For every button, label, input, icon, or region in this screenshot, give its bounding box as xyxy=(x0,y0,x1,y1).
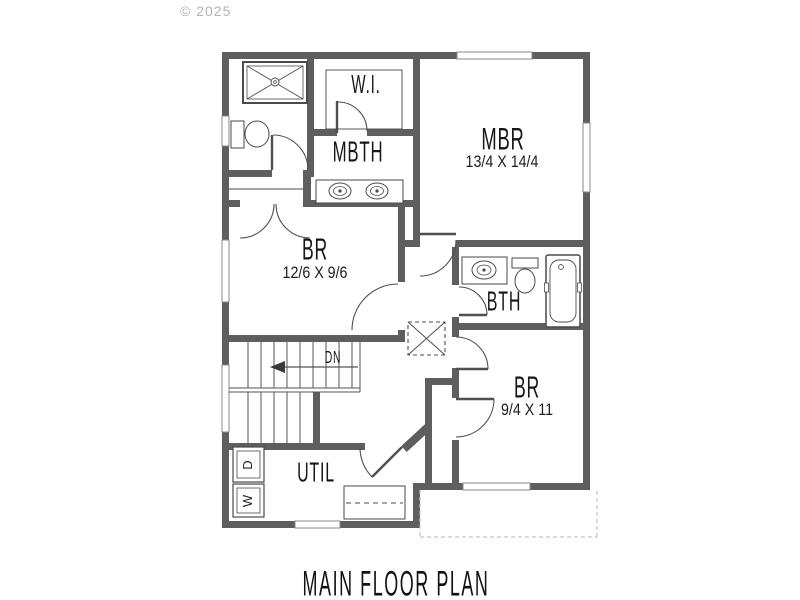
wall-mbr-west xyxy=(413,52,420,247)
wall-exterior-top xyxy=(222,52,590,59)
window-toilet-room xyxy=(222,116,229,146)
window-mbr-right xyxy=(583,123,590,192)
attic-access-icon xyxy=(408,322,445,355)
washer-icon: W xyxy=(233,484,264,517)
wall-exterior-step xyxy=(413,483,420,528)
stairs-down-arrow xyxy=(270,361,358,373)
floor-plan-sheet: © 2025 xyxy=(0,0,800,600)
wall-closet3-north xyxy=(425,378,452,385)
window-br3-bottom xyxy=(463,483,530,490)
wall-mbr-south xyxy=(456,240,583,247)
double-vanity-icon xyxy=(316,180,403,203)
door-util xyxy=(360,447,402,477)
bath-sink-icon xyxy=(462,257,507,284)
walls xyxy=(222,52,590,528)
room-label-master-bath: MBTH xyxy=(333,136,384,169)
door-br2-closet-double xyxy=(240,204,310,238)
room-dim-master-bedroom: 13/4 X 14/4 xyxy=(466,153,539,171)
wall-hall-north-stub xyxy=(398,240,420,247)
wall-wi-west xyxy=(307,52,314,177)
door-mbr xyxy=(420,234,456,276)
windows xyxy=(222,52,590,528)
door-br2 xyxy=(352,284,398,330)
door-toilet-room xyxy=(272,135,308,170)
room-label-bath: BTH xyxy=(487,287,521,319)
window-mbr-top xyxy=(457,52,532,59)
door-br3-closet xyxy=(456,399,494,437)
util-counter-icon xyxy=(344,486,405,519)
room-label-utility: UTIL xyxy=(297,458,335,490)
washer-label: W xyxy=(240,494,255,507)
window-br2 xyxy=(222,240,229,302)
door-walk-in-closet xyxy=(337,101,367,133)
wall-stair xyxy=(313,392,320,443)
wall-closet-east xyxy=(303,170,311,207)
door-br3-entry xyxy=(456,337,488,369)
wall-closet3-west xyxy=(425,385,432,490)
stairs-down-label: DN xyxy=(325,347,342,368)
wall-br3-west-low xyxy=(452,440,459,483)
wall-wi-south-right xyxy=(367,129,413,136)
porch-outline-dashed xyxy=(420,490,597,537)
room-label-bedroom-2: BR xyxy=(302,232,328,268)
room-dim-bedroom-3: 9/4 X 11 xyxy=(501,401,553,419)
wall-toilet-room-south xyxy=(229,170,272,177)
floor-plan-drawing: D W xyxy=(0,0,800,600)
plan-title: MAIN FLOOR PLAN xyxy=(303,563,490,600)
window-stair xyxy=(222,365,229,432)
toilet-icon-mbth xyxy=(231,121,269,148)
wall-br3-west-stub xyxy=(452,330,459,337)
room-dim-bedroom-2: 12/6 X 9/6 xyxy=(283,264,348,282)
door-bth xyxy=(459,287,487,315)
wall-exterior-right xyxy=(583,52,590,490)
dryer-label: D xyxy=(240,460,255,469)
wall-br2-north-stub xyxy=(229,200,240,207)
wall-br3-west-mid xyxy=(452,368,459,398)
wall-br2-south xyxy=(229,335,405,342)
room-label-walk-in-closet: W.I. xyxy=(351,71,380,101)
wall-wi-south-left xyxy=(307,129,337,136)
shower-icon xyxy=(243,62,307,103)
bathtub-icon xyxy=(545,255,582,327)
window-util-bottom xyxy=(295,521,340,528)
dryer-icon: D xyxy=(233,447,264,482)
wall-bth-west-upper xyxy=(452,247,459,285)
